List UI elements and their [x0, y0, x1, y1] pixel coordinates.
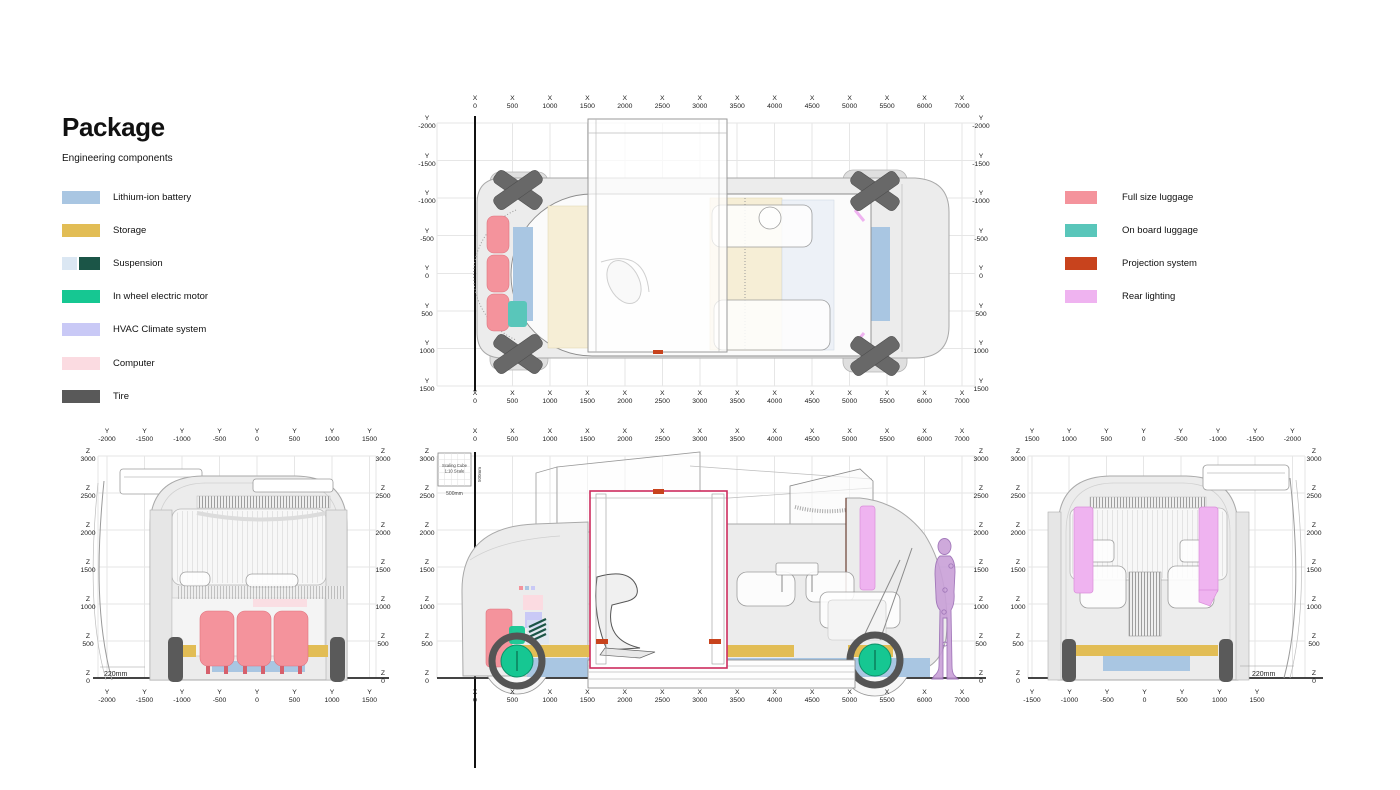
table [776, 563, 818, 575]
open-door-panel [1203, 465, 1289, 490]
open-door-edge [99, 481, 112, 680]
seat [737, 572, 795, 606]
front-clearance-label: 220mm [104, 671, 128, 678]
front-view-vehicle: 220mm [93, 469, 347, 682]
battery-block [1103, 656, 1190, 671]
side-pillar [1048, 512, 1061, 680]
headrest [246, 574, 298, 587]
luggage-block [237, 611, 271, 666]
roof-panel [253, 479, 333, 492]
grille-band [1090, 497, 1206, 508]
tire [168, 637, 183, 682]
projection-marker [709, 639, 721, 644]
projection-marker [653, 489, 664, 494]
rear-light-bar [860, 506, 875, 590]
couch [714, 300, 830, 350]
scaling-cube-label-1: Scaling Cube [442, 463, 468, 468]
rear-light-bar [1199, 507, 1218, 593]
luggage-block [274, 611, 308, 666]
headrest [180, 572, 210, 586]
tire [1219, 639, 1233, 682]
top-onboard-luggage-block [508, 301, 527, 327]
luggage-block [200, 611, 234, 666]
top-luggage-block [487, 294, 509, 331]
computer-block [253, 599, 307, 607]
seat-area [548, 206, 588, 348]
center-strut [1129, 572, 1161, 636]
grille-band [197, 496, 330, 508]
stool [759, 207, 781, 229]
top-view-vehicle [474, 119, 949, 378]
side-view-vehicle: Scaling Cube 1:10 Scale 500mm 500mm [438, 452, 958, 696]
rear-clearance-label: 220mm [1252, 671, 1276, 678]
scaling-cube-side-label: 500mm [477, 467, 482, 482]
computer-block [523, 595, 543, 610]
top-sliding-door-outline [588, 119, 727, 352]
tire [330, 637, 345, 682]
projection-marker [596, 639, 608, 644]
rear-view-vehicle: 220mm [1048, 465, 1302, 682]
package-diagram-page: Package Engineering components Lithium-i… [0, 0, 1400, 790]
open-door-edge [1284, 478, 1296, 678]
side-pillar [1236, 512, 1249, 680]
scaling-cube-bottom-label: 500mm [446, 491, 463, 497]
top-projection-marker [653, 350, 663, 354]
storage-strip [1076, 645, 1218, 656]
scaling-cube-label-2: 1:10 Scale [445, 469, 465, 474]
top-luggage-block [487, 255, 509, 292]
top-luggage-block [487, 216, 509, 253]
tire [1062, 639, 1076, 682]
rear-light-bar [1074, 507, 1093, 593]
vehicle-drawings: 220mm Scaling Cube 1:10 Scale 500mm 500m… [0, 0, 1400, 790]
